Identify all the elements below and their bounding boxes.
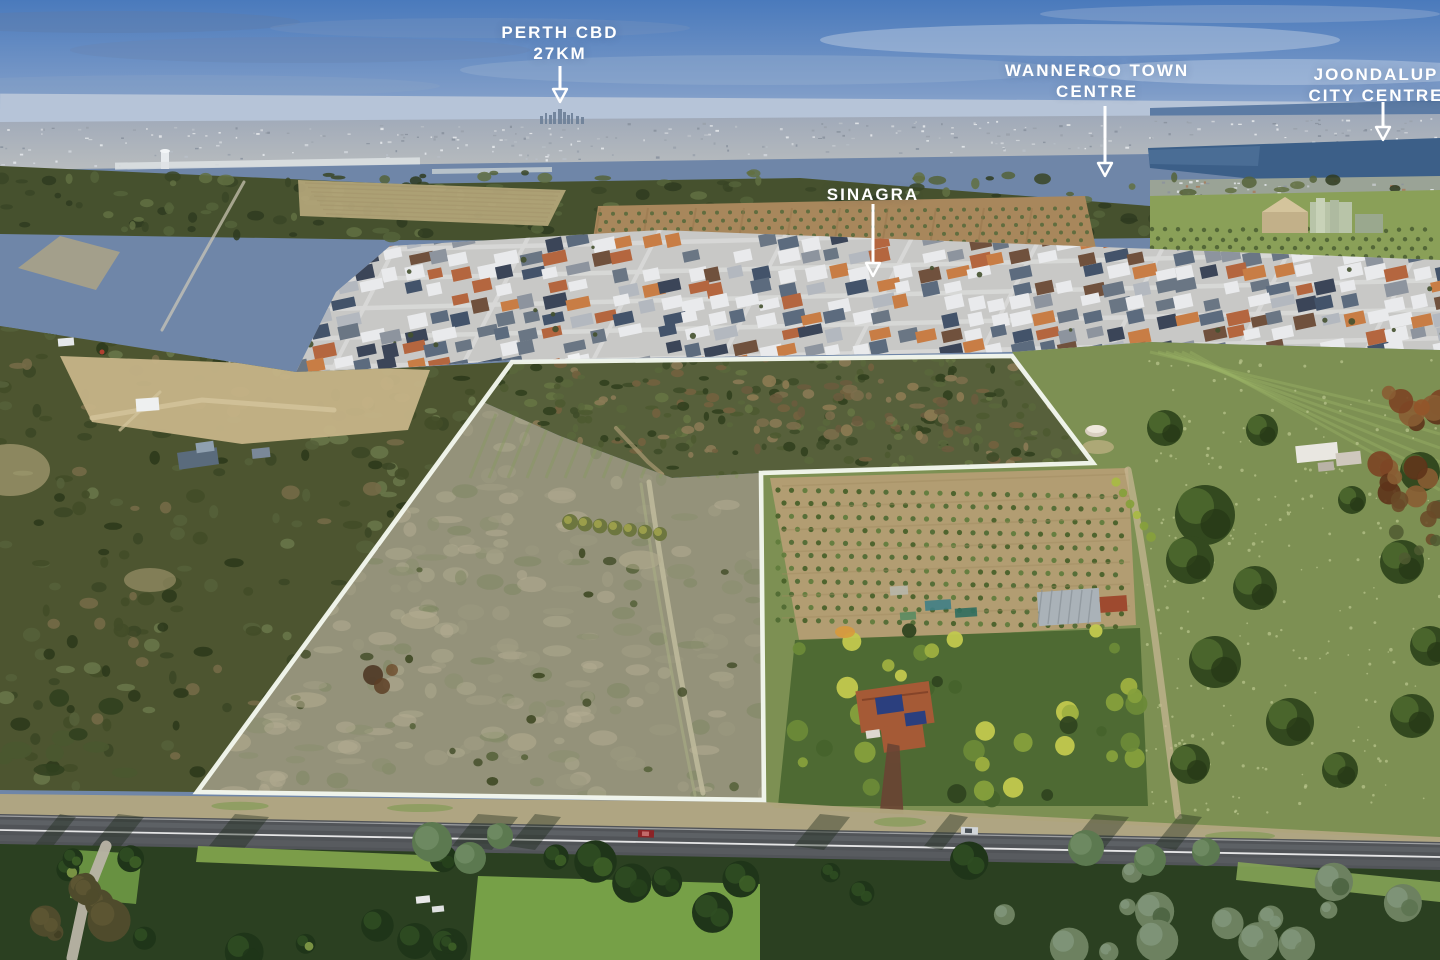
label-perth-cbd: PERTH CBD 27KM xyxy=(501,22,618,64)
label-sinagra-line1: SINAGRA xyxy=(827,184,919,205)
label-joondalup-line1: JOONDALUP xyxy=(1308,64,1440,85)
down-arrow-icon xyxy=(1094,106,1116,178)
down-arrow-icon xyxy=(862,204,884,278)
label-sinagra: SINAGRA xyxy=(827,184,919,205)
label-perth-cbd-line1: PERTH CBD xyxy=(501,22,618,43)
label-wanneroo: WANNEROO TOWN CENTRE xyxy=(1005,60,1189,102)
aerial-property-photo: PERTH CBD 27KM WANNEROO TOWN CENTRE SINA… xyxy=(0,0,1440,960)
label-joondalup: JOONDALUP CITY CENTRE xyxy=(1308,64,1440,106)
down-arrow-icon xyxy=(549,66,571,104)
down-arrow-icon xyxy=(1372,102,1394,142)
label-wanneroo-line2: CENTRE xyxy=(1005,81,1189,102)
aerial-photograph xyxy=(0,0,1440,960)
label-wanneroo-line1: WANNEROO TOWN xyxy=(1005,60,1189,81)
label-perth-cbd-line2: 27KM xyxy=(501,43,618,64)
